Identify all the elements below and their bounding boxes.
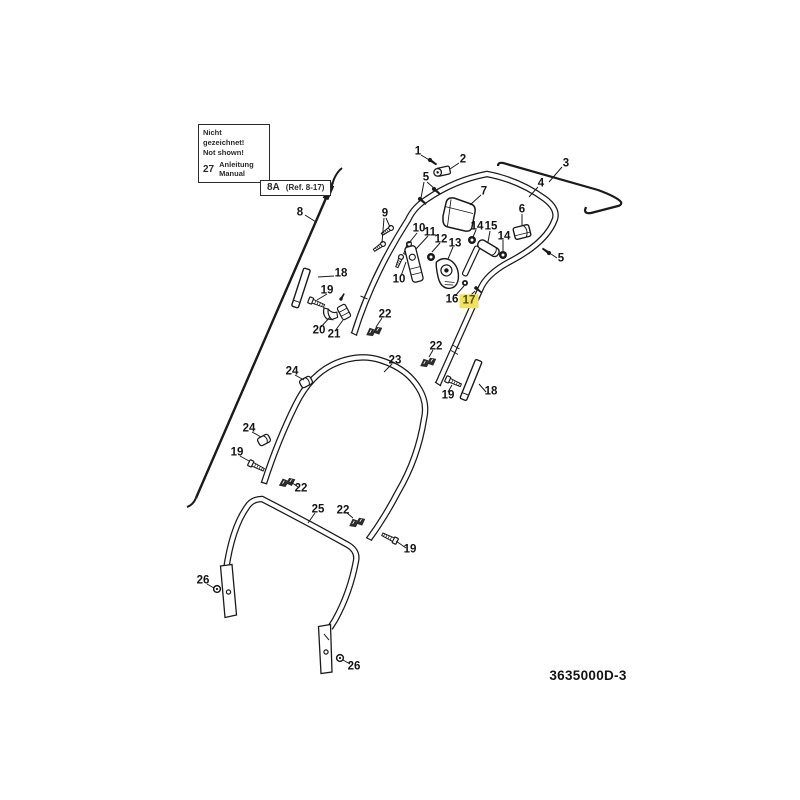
part-label-5b: 5 <box>558 253 564 265</box>
part-label-13: 13 <box>449 238 462 250</box>
part-label-23: 23 <box>389 355 402 367</box>
part-label-16: 16 <box>446 294 459 306</box>
part-label-22c: 22 <box>295 483 308 495</box>
legend-item-name: Anleitung Manual <box>219 160 254 178</box>
part-label-5a: 5 <box>423 172 429 184</box>
part-label-17-highlighted: 17 <box>460 294 479 308</box>
bracket-part-11 <box>403 241 423 282</box>
part-label-20: 20 <box>313 325 326 337</box>
part-label-14a: 14 <box>471 221 484 233</box>
part-label-8: 8 <box>297 207 303 219</box>
cam-housing-part-13 <box>433 255 462 291</box>
part-label-22a: 22 <box>379 309 392 321</box>
clamp-part-21 <box>337 293 352 321</box>
part-label-9: 9 <box>382 208 388 220</box>
part-label-19b: 19 <box>442 390 455 402</box>
ref-8a-box: 8A (Ref. 8-17) <box>260 180 331 196</box>
nut-part-12 <box>427 253 435 261</box>
legend-line-de: Nicht gezeichnet! <box>203 128 265 148</box>
washer-part-16 <box>462 280 468 286</box>
part-label-4: 4 <box>538 178 544 190</box>
sleeve-part-2 <box>433 166 451 177</box>
part-label-26a: 26 <box>197 575 210 587</box>
part-label-14b: 14 <box>498 231 511 243</box>
part-label-15: 15 <box>485 221 498 233</box>
not-shown-legend: Nicht gezeichnet! Not shown! 27 Anleitun… <box>198 124 270 183</box>
ref-detail: (Ref. 8-17) <box>286 183 325 192</box>
part-label-1: 1 <box>415 146 421 158</box>
part-label-6: 6 <box>519 204 525 216</box>
exploded-diagram-drawing <box>0 0 800 800</box>
part-label-18a: 18 <box>335 268 348 280</box>
drawing-number: 3635000D-3 <box>546 668 630 683</box>
lower-handle-tube-25 <box>221 499 357 674</box>
part-label-7: 7 <box>481 186 487 198</box>
part-label-24a: 24 <box>286 366 299 378</box>
part-label-22d: 22 <box>337 505 350 517</box>
part-label-18b: 18 <box>485 386 498 398</box>
part-label-10b: 10 <box>393 274 406 286</box>
legend-item-name-en: Manual <box>219 169 245 178</box>
sleeve-part-6 <box>513 224 531 240</box>
grip-sleeve-part-18-right <box>460 359 482 401</box>
part-label-19a: 19 <box>321 285 334 297</box>
part-label-26b: 26 <box>348 661 361 673</box>
part-label-25: 25 <box>312 504 325 516</box>
part-label-22b: 22 <box>430 341 443 353</box>
legend-item-number: 27 <box>203 164 214 175</box>
cable-part-8 <box>187 168 342 507</box>
legend-line-en: Not shown! <box>203 148 265 158</box>
screw-part-1 <box>427 157 438 166</box>
ref-code: 8A <box>267 182 280 193</box>
legend-item-row: 27 Anleitung Manual <box>203 160 265 178</box>
part-label-12: 12 <box>435 234 448 246</box>
part-label-3: 3 <box>563 158 569 170</box>
legend-item-name-de: Anleitung <box>219 160 254 169</box>
part-label-24b: 24 <box>243 423 256 435</box>
parts-diagram-page: Nicht gezeichnet! Not shown! 27 Anleitun… <box>0 0 800 800</box>
part-label-19c: 19 <box>231 447 244 459</box>
bushings-part-24 <box>257 375 314 446</box>
part-label-2: 2 <box>460 154 466 166</box>
part-label-21: 21 <box>328 329 341 341</box>
part-label-19d: 19 <box>404 544 417 556</box>
